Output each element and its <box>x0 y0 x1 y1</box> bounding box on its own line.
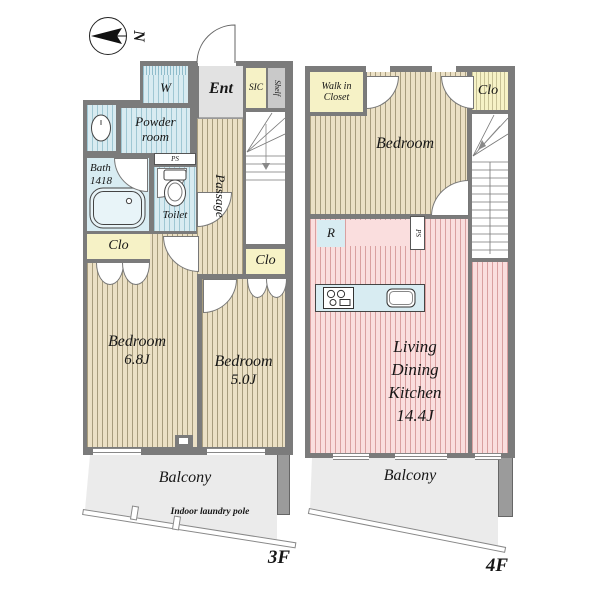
compass-north-icon <box>88 16 128 56</box>
stairs-3f-icon <box>246 112 285 244</box>
floor-4f-plan: PS Walk in Close <box>305 66 515 458</box>
bathtub-icon <box>89 187 146 229</box>
washbasin-icon <box>90 113 112 143</box>
window-4f <box>475 453 501 460</box>
balcony-3f-side-wall <box>277 447 290 515</box>
balcony-3f-floor <box>83 455 295 550</box>
floorplan-canvas: N PS <box>0 0 600 600</box>
shelf-strip <box>268 68 285 108</box>
pillar-3f <box>175 435 193 448</box>
walk-in-closet <box>310 72 367 116</box>
window-4f <box>395 453 447 460</box>
entrance-hall <box>199 66 243 118</box>
window-4f <box>333 453 369 460</box>
shoe-closet <box>246 68 266 108</box>
pipe-space-3f-label: PS <box>155 154 195 164</box>
powder-room <box>121 108 190 153</box>
refrigerator-space <box>317 220 345 247</box>
kitchen-counter <box>315 284 425 312</box>
washbasin-nook <box>87 105 116 151</box>
washer-shelf-hatch <box>143 66 188 75</box>
stairs-4f-icon <box>472 114 508 258</box>
closet-3f-left <box>87 234 150 263</box>
closet-4f <box>468 72 508 114</box>
ldk-room <box>310 219 468 453</box>
floor-3f-label: 3F <box>258 545 300 571</box>
closet-3f-right <box>246 249 285 278</box>
pipe-space-3f: PS <box>154 153 196 165</box>
floor-4f-label: 4F <box>476 553 518 579</box>
stairs-3f <box>246 112 285 244</box>
door-opening-4f <box>432 66 456 72</box>
balcony-4f-floor <box>305 458 518 555</box>
toilet-icon <box>161 169 189 209</box>
pillar-3f-inner <box>179 438 188 444</box>
stairs-4f <box>472 114 508 258</box>
floor-3f-plan: PS <box>83 61 293 455</box>
door-opening-4f <box>366 66 390 72</box>
kitchen-cabinet <box>347 220 408 246</box>
stove-icon <box>323 287 354 309</box>
entrance-door-arc <box>196 24 236 64</box>
balcony-4f-side-wall <box>498 455 513 517</box>
sink-icon <box>386 288 416 308</box>
ldk-room-extension <box>472 262 508 453</box>
pipe-space-4f <box>410 216 425 250</box>
compass-north-label: N <box>127 25 149 47</box>
